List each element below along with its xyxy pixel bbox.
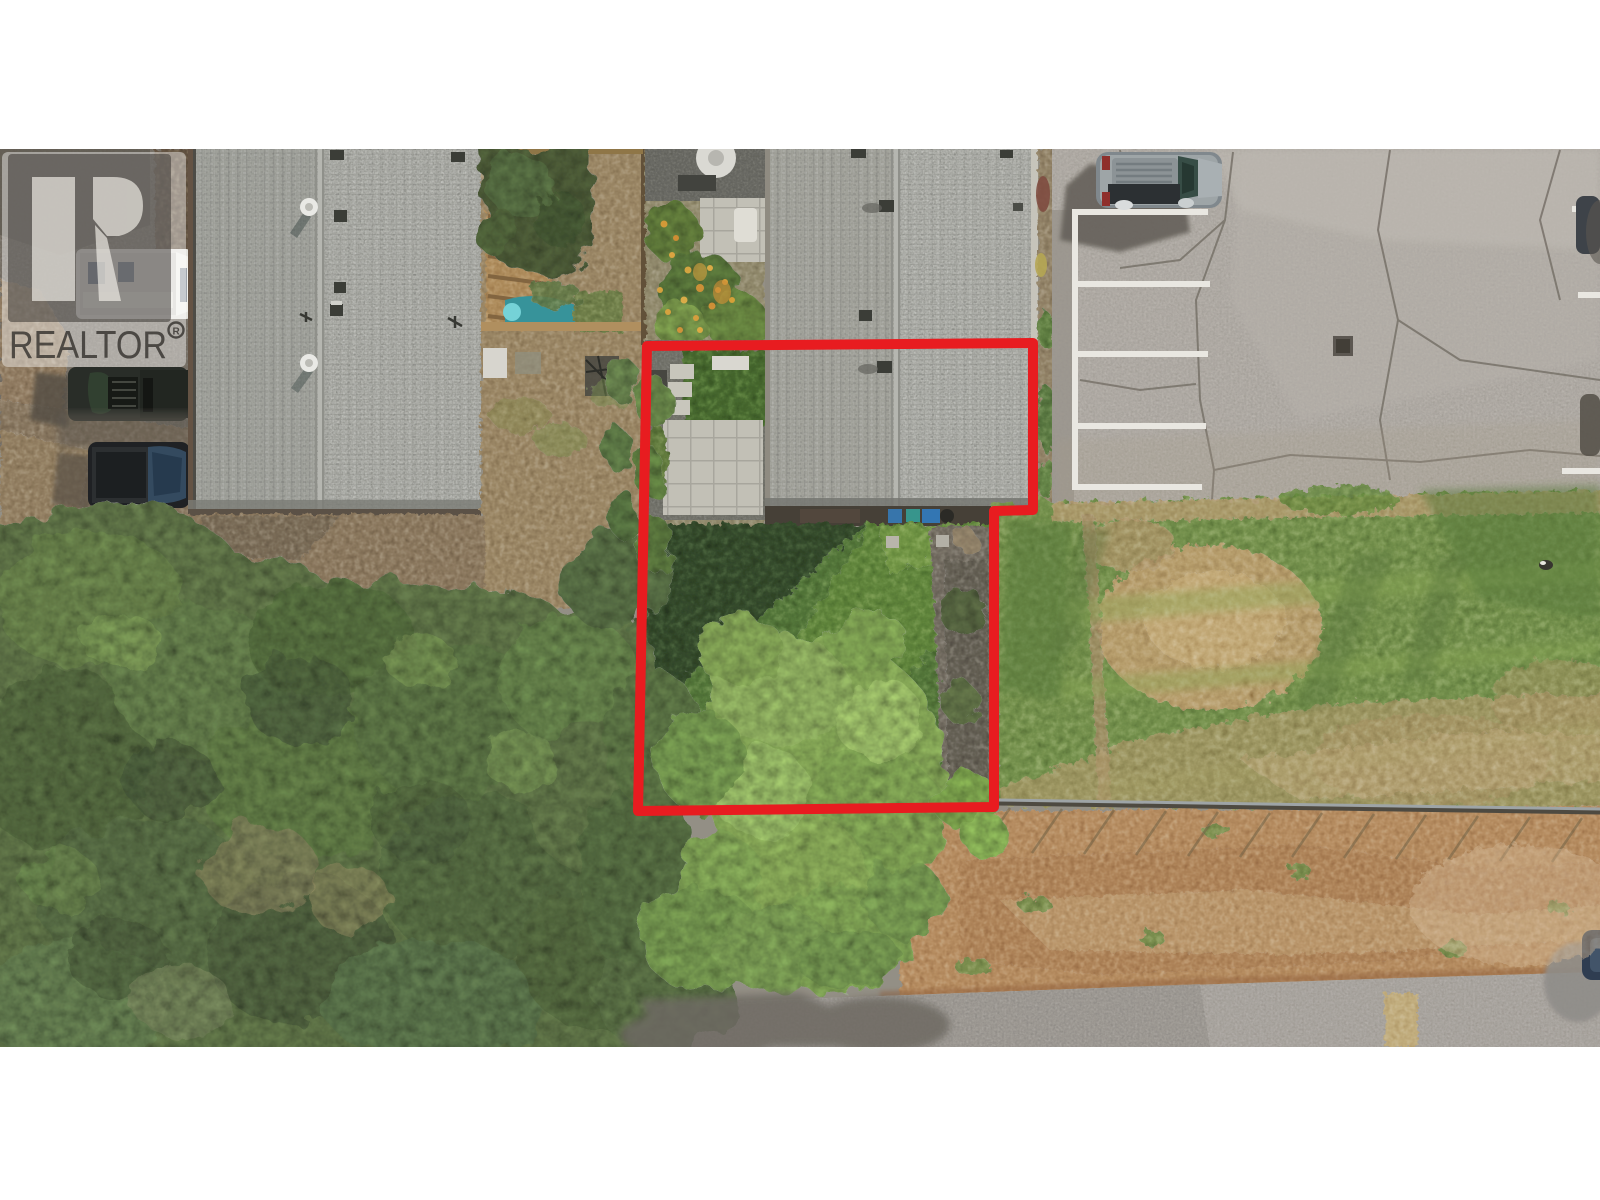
svg-text:REALTOR: REALTOR [9,324,167,367]
svg-text:R: R [173,327,181,338]
